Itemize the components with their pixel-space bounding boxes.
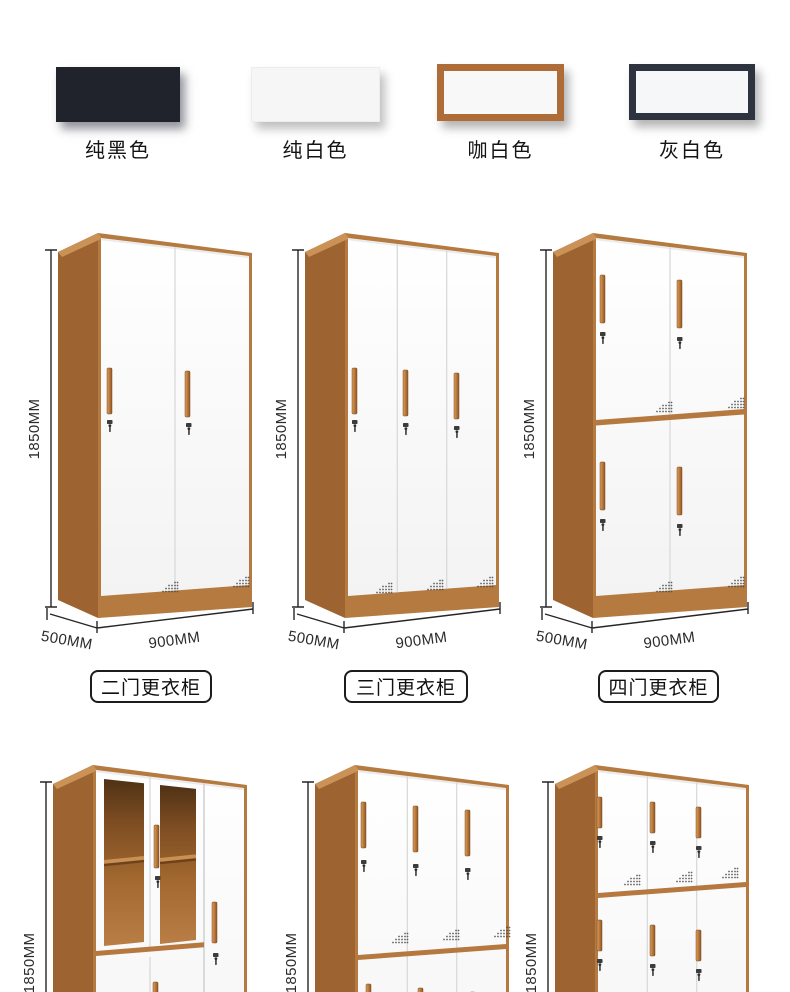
- door-handle: [418, 988, 423, 992]
- badge-2door-locker: 二门更衣柜: [90, 670, 212, 703]
- dim-height: 1850MM: [283, 933, 300, 992]
- dim-width: 900MM: [148, 629, 202, 652]
- swatch-label-gray-white: 灰白色: [629, 134, 755, 163]
- dim-height: 1850MM: [523, 933, 540, 992]
- swatch-label-pure-black: 纯黑色: [56, 134, 180, 163]
- door-handle: [696, 807, 701, 838]
- dim-height: 1850MM: [273, 399, 290, 460]
- door-handle: [597, 920, 602, 951]
- door-handle: [352, 368, 357, 414]
- door-handle: [212, 902, 217, 943]
- swatch-pure-white: [251, 67, 380, 122]
- locker-3door-illustration: 1850MM 500MM 900MM: [272, 222, 522, 652]
- door-handle: [366, 984, 371, 992]
- door-handle: [696, 930, 701, 961]
- door-handle: [677, 467, 682, 515]
- door-handle: [153, 982, 158, 992]
- dim-depth: 500MM: [287, 628, 341, 652]
- locker-2door-illustration: 1850MM 500MM 900MM: [25, 222, 275, 652]
- dim-width: 900MM: [643, 629, 697, 652]
- swatch-coffee-white: [437, 64, 564, 121]
- locker-9door-illustration: 1850MM: [522, 754, 772, 992]
- badge-3door-locker: 三门更衣柜: [344, 670, 468, 703]
- swatch-pure-black: [56, 67, 180, 122]
- door-handle: [403, 370, 408, 416]
- locker-4door-illustration: 1850MM 500MM 900MM: [520, 222, 770, 652]
- glass-panel: [160, 785, 196, 944]
- door-handle: [600, 462, 605, 510]
- door-handle: [650, 802, 655, 833]
- door-handle: [597, 797, 602, 828]
- dimension-lines: [302, 782, 314, 992]
- dim-height: 1850MM: [521, 399, 538, 460]
- door-handle: [454, 373, 459, 419]
- swatch-gray-white: [629, 64, 755, 120]
- dim-depth: 500MM: [535, 628, 589, 652]
- dimension-lines: [40, 782, 52, 992]
- file-cabinet-glass-illustration: 1850MM: [20, 754, 270, 992]
- door-handle: [677, 280, 682, 328]
- door-handle: [600, 275, 605, 323]
- door-handle: [107, 368, 112, 414]
- door-handle: [361, 802, 366, 848]
- dim-width: 900MM: [395, 629, 449, 652]
- door-handle: [465, 810, 470, 856]
- locker-6door-illustration: 1850MM: [282, 754, 532, 992]
- dim-height: 1850MM: [21, 933, 38, 992]
- dim-depth: 500MM: [40, 628, 94, 652]
- door-handle: [185, 371, 190, 417]
- badge-4door-locker: 四门更衣柜: [598, 670, 719, 703]
- door-handle: [413, 806, 418, 852]
- dimension-lines: [542, 782, 554, 992]
- swatch-label-coffee-white: 咖白色: [437, 134, 564, 163]
- door-handle: [154, 825, 159, 868]
- swatch-label-pure-white: 纯白色: [251, 134, 380, 163]
- dim-height: 1850MM: [26, 399, 43, 460]
- door-handle: [650, 925, 655, 956]
- product-detail-image: 纯黑色 纯白色 咖白色 灰白色 1850MM 500MM 900MM 1850M…: [0, 0, 790, 992]
